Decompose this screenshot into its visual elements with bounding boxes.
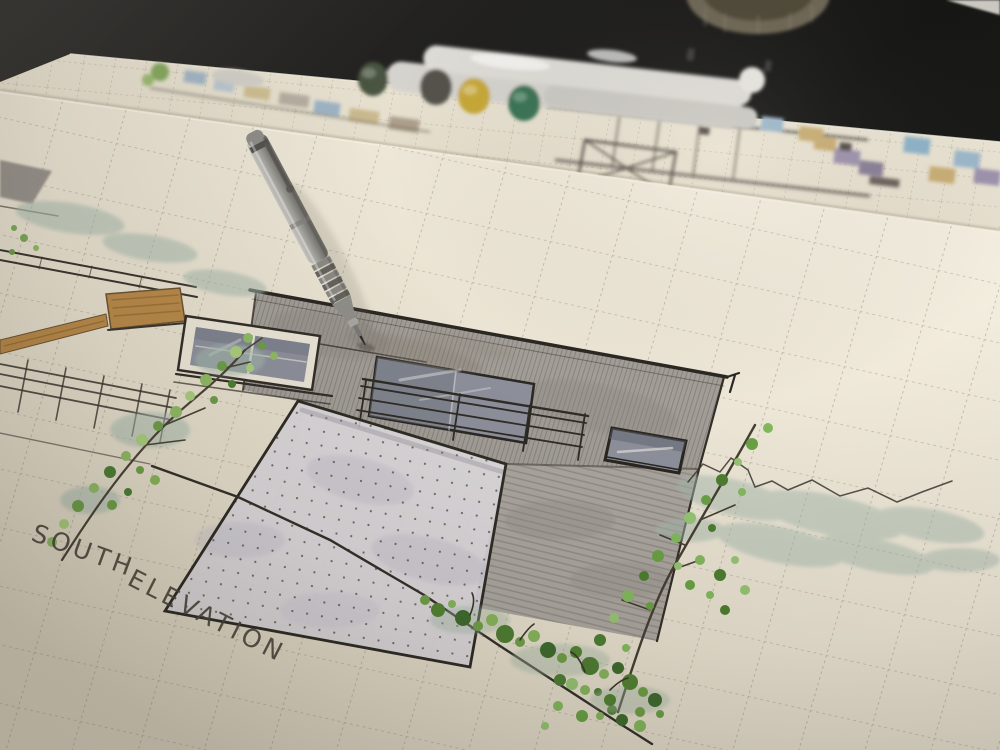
marker-cap-green: [508, 85, 540, 121]
marker-cap-yellow: [458, 78, 490, 114]
wood-gate: [106, 288, 185, 329]
marker-cap-charcoal: [420, 69, 452, 105]
photo-architectural-sketch: SOUTH ELEVATION: [0, 0, 1000, 750]
marker-cap-olive: [358, 62, 388, 96]
